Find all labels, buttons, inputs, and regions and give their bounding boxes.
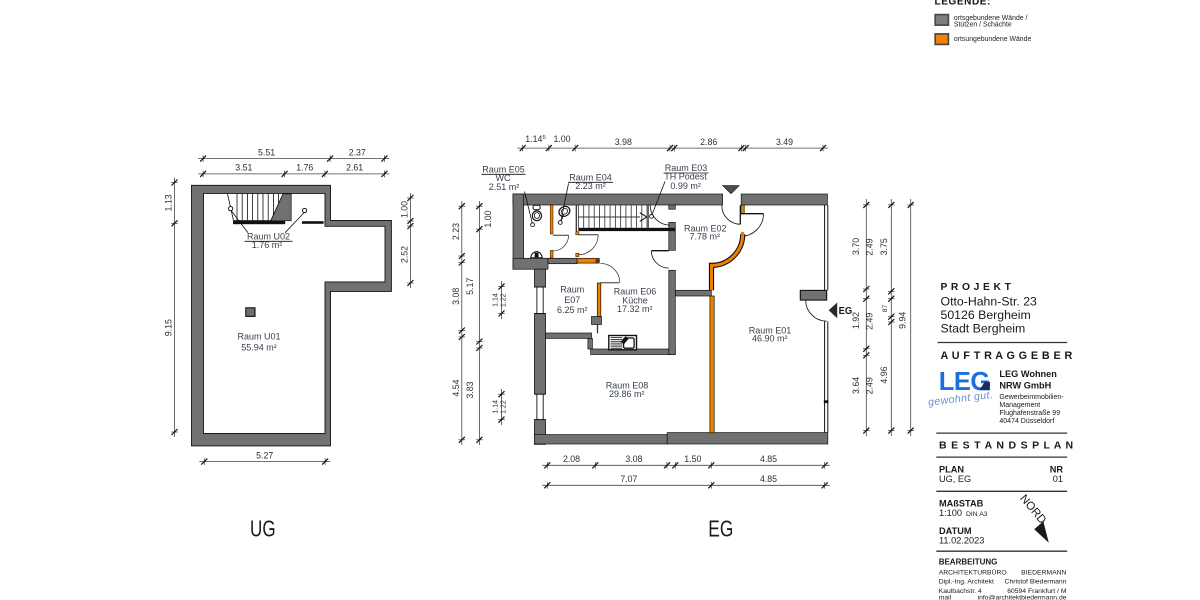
svg-text:1.22: 1.22 bbox=[501, 400, 508, 414]
svg-text:UG: UG bbox=[250, 516, 276, 542]
svg-text:17.32 m²: 17.32 m² bbox=[617, 304, 653, 314]
svg-text:5.27: 5.27 bbox=[256, 450, 273, 460]
svg-text:1.92: 1.92 bbox=[851, 312, 861, 329]
svg-text:87: 87 bbox=[882, 305, 889, 313]
svg-text:Stützen / Schächte: Stützen / Schächte bbox=[954, 22, 1012, 29]
svg-text:A U F T R A G G E B E R: A U F T R A G G E B E R bbox=[941, 350, 1073, 362]
svg-text:3.08: 3.08 bbox=[625, 454, 642, 464]
svg-text:2.37: 2.37 bbox=[349, 147, 366, 157]
svg-text:1.00: 1.00 bbox=[553, 134, 570, 144]
svg-text:DIN A3: DIN A3 bbox=[966, 511, 988, 518]
svg-text:2.51 m²: 2.51 m² bbox=[489, 182, 520, 192]
svg-text:9.15: 9.15 bbox=[164, 319, 174, 336]
svg-text:Raum U01: Raum U01 bbox=[237, 331, 280, 341]
svg-text:4.96: 4.96 bbox=[879, 366, 889, 383]
svg-text:6.25 m²: 6.25 m² bbox=[557, 305, 588, 315]
svg-text:01: 01 bbox=[1053, 474, 1063, 484]
svg-text:Dipl.-Ing. Architekt: Dipl.-Ing. Architekt bbox=[939, 579, 994, 586]
svg-text:2.23: 2.23 bbox=[451, 223, 461, 240]
svg-text:LEGENDE:: LEGENDE: bbox=[935, 0, 991, 7]
svg-text:P R O J E K T: P R O J E K T bbox=[941, 282, 1012, 293]
svg-text:DATUM: DATUM bbox=[939, 526, 972, 536]
svg-text:4.85: 4.85 bbox=[760, 454, 777, 464]
svg-text:1.14: 1.14 bbox=[492, 400, 499, 414]
svg-text:3.70: 3.70 bbox=[851, 238, 861, 255]
svg-text:mail: mail bbox=[939, 595, 952, 600]
svg-text:5.17: 5.17 bbox=[465, 278, 475, 295]
svg-text:Gewerbeimmobilien-: Gewerbeimmobilien- bbox=[999, 394, 1064, 401]
svg-text:3.75: 3.75 bbox=[879, 238, 889, 255]
svg-text:B E S T A N D S P L A N: B E S T A N D S P L A N bbox=[939, 440, 1074, 452]
svg-text:Stadt Bergheim: Stadt Bergheim bbox=[941, 321, 1026, 335]
svg-text:BIEDERMANN: BIEDERMANN bbox=[1021, 569, 1066, 576]
svg-text:11.02.2023: 11.02.2023 bbox=[939, 536, 984, 546]
svg-text:E07: E07 bbox=[564, 295, 580, 305]
svg-text:Christof Biedermann: Christof Biedermann bbox=[1005, 579, 1067, 586]
svg-text:55.94 m²: 55.94 m² bbox=[241, 343, 277, 353]
svg-text:2.23 m²: 2.23 m² bbox=[575, 181, 606, 191]
svg-text:Flughafenstraße 99: Flughafenstraße 99 bbox=[999, 410, 1060, 417]
svg-text:5.51: 5.51 bbox=[258, 147, 275, 157]
svg-text:ARCHITEKTURBÜRO: ARCHITEKTURBÜRO bbox=[939, 568, 1007, 576]
svg-text:1.00: 1.00 bbox=[399, 201, 409, 218]
svg-text:4.54: 4.54 bbox=[451, 379, 461, 396]
svg-text:2.08: 2.08 bbox=[563, 454, 580, 464]
svg-text:3.83: 3.83 bbox=[465, 381, 475, 398]
svg-text:1.00: 1.00 bbox=[483, 210, 493, 227]
svg-text:1.22: 1.22 bbox=[501, 293, 508, 307]
svg-text:1.76: 1.76 bbox=[296, 163, 313, 173]
svg-text:7.78 m²: 7.78 m² bbox=[690, 232, 721, 242]
svg-text:3.64: 3.64 bbox=[851, 377, 861, 394]
svg-text:50126 Bergheim: 50126 Bergheim bbox=[941, 308, 1031, 322]
svg-text:LEG Wohnen: LEG Wohnen bbox=[999, 369, 1057, 379]
svg-text:2.86: 2.86 bbox=[700, 137, 717, 147]
svg-text:7.07: 7.07 bbox=[620, 474, 637, 484]
svg-text:EG: EG bbox=[708, 516, 733, 542]
svg-text:1.76 m²: 1.76 m² bbox=[252, 240, 283, 250]
svg-text:1.14: 1.14 bbox=[525, 134, 542, 144]
svg-text:2.61: 2.61 bbox=[346, 163, 363, 173]
svg-text:BEARBEITUNG: BEARBEITUNG bbox=[939, 558, 998, 567]
svg-text:2.52: 2.52 bbox=[399, 246, 409, 263]
svg-text:Otto-Hahn-Str. 23: Otto-Hahn-Str. 23 bbox=[941, 295, 1038, 309]
svg-text:9.94: 9.94 bbox=[898, 312, 908, 329]
svg-text:1.14: 1.14 bbox=[492, 293, 499, 307]
svg-text:2.49: 2.49 bbox=[865, 238, 875, 255]
svg-text:46.90 m²: 46.90 m² bbox=[752, 334, 788, 344]
svg-text:NRW GmbH: NRW GmbH bbox=[999, 380, 1051, 390]
svg-text:ortsungebundene Wände: ortsungebundene Wände bbox=[954, 36, 1032, 43]
svg-text:4.85: 4.85 bbox=[760, 474, 777, 484]
svg-text:3.49: 3.49 bbox=[776, 137, 793, 147]
svg-text:3.98: 3.98 bbox=[615, 137, 632, 147]
svg-text:2.49: 2.49 bbox=[865, 313, 875, 330]
svg-text:40474 Düsseldorf: 40474 Düsseldorf bbox=[999, 418, 1054, 425]
svg-text:info@architektbiedermann.de: info@architektbiedermann.de bbox=[978, 595, 1067, 600]
svg-text:Management: Management bbox=[999, 402, 1040, 409]
svg-text:0.99 m²: 0.99 m² bbox=[670, 181, 701, 191]
svg-text:5: 5 bbox=[543, 135, 546, 141]
svg-text:UG, EG: UG, EG bbox=[939, 474, 971, 484]
svg-text:1.50: 1.50 bbox=[684, 454, 701, 464]
svg-text:Raum: Raum bbox=[560, 285, 584, 295]
svg-text:1.13: 1.13 bbox=[164, 194, 174, 211]
svg-text:3.08: 3.08 bbox=[451, 288, 461, 305]
svg-text:2.49: 2.49 bbox=[865, 377, 875, 394]
svg-text:1:100: 1:100 bbox=[939, 508, 962, 518]
svg-text:29.86 m²: 29.86 m² bbox=[609, 389, 645, 399]
svg-text:3.51: 3.51 bbox=[235, 163, 252, 173]
